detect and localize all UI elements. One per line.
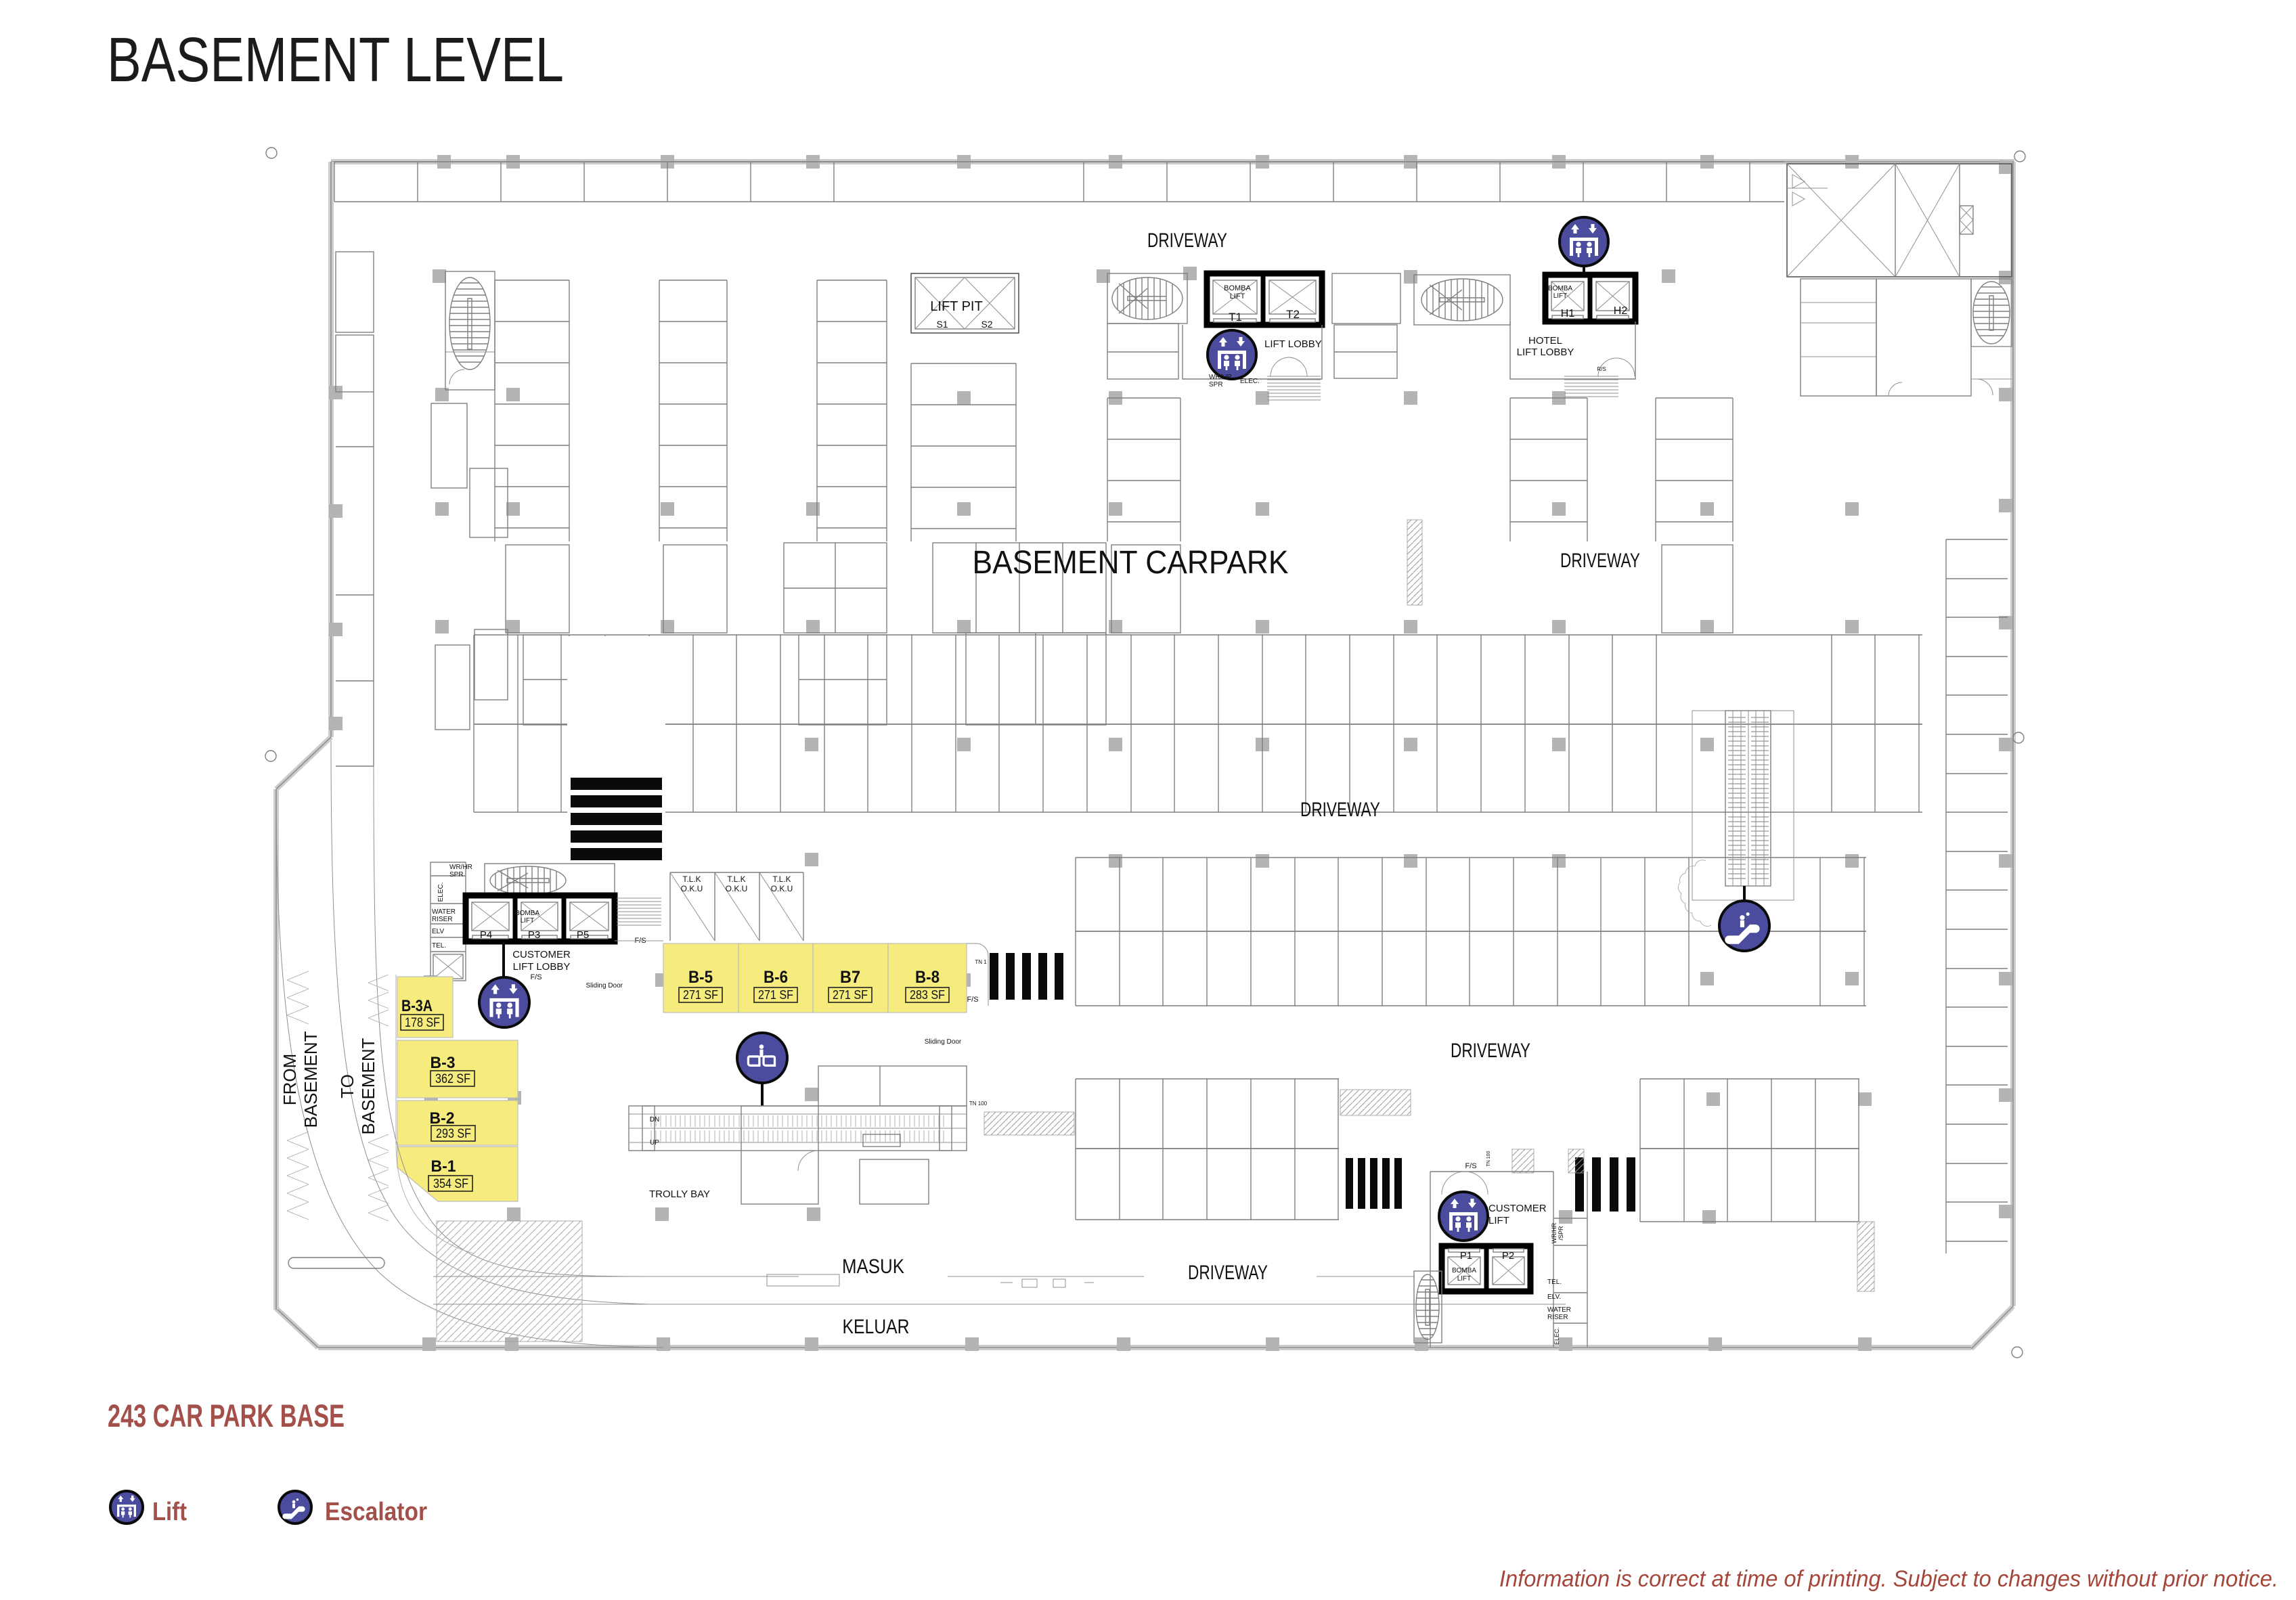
svg-text:F/S: F/S <box>967 996 978 1004</box>
svg-text:Information is correct at time: Information is correct at time of printi… <box>1499 1566 2278 1592</box>
svg-text:CUSTOMER: CUSTOMER <box>1488 1203 1547 1214</box>
svg-text:BOMBA: BOMBA <box>1548 285 1572 292</box>
svg-text:271 SF: 271 SF <box>683 988 718 1002</box>
svg-text:RISER: RISER <box>432 916 453 923</box>
svg-text:Sliding Door: Sliding Door <box>586 982 623 990</box>
svg-text:362 SF: 362 SF <box>435 1072 470 1086</box>
svg-text:354 SF: 354 SF <box>433 1177 468 1191</box>
svg-text:LIFT: LIFT <box>1230 292 1245 301</box>
svg-text:LIFT: LIFT <box>1488 1215 1509 1226</box>
svg-text:BASEMENT LEVEL: BASEMENT LEVEL <box>107 24 564 95</box>
svg-text:LIFT LOBBY: LIFT LOBBY <box>1264 338 1322 350</box>
svg-text:O.K.U: O.K.U <box>681 884 703 893</box>
svg-text:DRIVEWAY: DRIVEWAY <box>1560 550 1640 572</box>
svg-text:P2: P2 <box>1502 1250 1514 1262</box>
svg-text:TO: TO <box>337 1074 357 1098</box>
svg-text:F/S: F/S <box>1465 1162 1476 1170</box>
svg-text:O.K.U: O.K.U <box>726 884 748 893</box>
svg-text:HOTEL: HOTEL <box>1528 335 1562 347</box>
svg-text:KELUAR: KELUAR <box>843 1316 910 1338</box>
svg-text:B-5: B-5 <box>688 968 713 987</box>
svg-text:B-8: B-8 <box>915 968 940 987</box>
svg-text:243 CAR PARK BASE: 243 CAR PARK BASE <box>108 1398 345 1434</box>
svg-text:TN 100: TN 100 <box>969 1101 988 1107</box>
svg-text:B-3A: B-3A <box>401 997 433 1015</box>
svg-text:LIFT LOBBY: LIFT LOBBY <box>1517 347 1574 358</box>
svg-text:178 SF: 178 SF <box>405 1016 440 1030</box>
svg-text:Sliding Door: Sliding Door <box>925 1038 962 1046</box>
svg-text:TROLLY BAY: TROLLY BAY <box>649 1188 710 1200</box>
svg-text:S2: S2 <box>981 319 992 330</box>
svg-text:DRIVEWAY: DRIVEWAY <box>1147 229 1227 252</box>
svg-text:SPR: SPR <box>449 871 464 879</box>
svg-text:P3: P3 <box>528 929 540 941</box>
svg-text:283 SF: 283 SF <box>910 988 945 1002</box>
svg-text:T.L.K: T.L.K <box>772 874 791 884</box>
svg-text:/SPR: /SPR <box>1558 1226 1564 1241</box>
svg-text:UP: UP <box>650 1139 659 1147</box>
svg-text:DRIVEWAY: DRIVEWAY <box>1451 1040 1530 1062</box>
svg-text:TEL.: TEL. <box>432 942 446 950</box>
svg-text:B-6: B-6 <box>764 968 788 987</box>
svg-text:R/S: R/S <box>1597 366 1606 372</box>
svg-text:Escalator: Escalator <box>325 1498 427 1526</box>
svg-text:DRIVEWAY: DRIVEWAY <box>1188 1262 1268 1284</box>
svg-text:ELEC.: ELEC. <box>1553 1327 1560 1345</box>
svg-text:P5: P5 <box>577 929 589 941</box>
svg-text:B-3: B-3 <box>430 1054 456 1072</box>
svg-text:S1: S1 <box>936 319 948 330</box>
svg-text:P4: P4 <box>480 929 492 941</box>
svg-text:H2: H2 <box>1614 305 1628 317</box>
svg-text:271 SF: 271 SF <box>833 988 868 1002</box>
svg-text:ELEC.: ELEC. <box>1240 378 1260 385</box>
svg-text:FROM: FROM <box>280 1054 300 1106</box>
svg-text:TN 1: TN 1 <box>975 959 987 965</box>
svg-text:CUSTOMER: CUSTOMER <box>512 949 571 960</box>
svg-text:DRIVEWAY: DRIVEWAY <box>1300 799 1380 821</box>
svg-text:F/S: F/S <box>530 973 542 981</box>
svg-text:WATER: WATER <box>1547 1306 1571 1314</box>
svg-text:P1: P1 <box>1460 1250 1472 1262</box>
svg-text:TEL.: TEL. <box>1547 1279 1562 1286</box>
svg-text:B-1: B-1 <box>431 1157 456 1176</box>
svg-text:BASEMENT CARPARK: BASEMENT CARPARK <box>973 545 1289 581</box>
svg-text:LIFT LOBBY: LIFT LOBBY <box>513 961 571 973</box>
svg-text:B-2: B-2 <box>430 1109 455 1128</box>
svg-text:ELV.: ELV. <box>1547 1293 1561 1301</box>
svg-text:O.K.U: O.K.U <box>771 884 793 893</box>
svg-text:WR/HR: WR/HR <box>1209 374 1232 381</box>
svg-text:LIFT: LIFT <box>1553 292 1568 300</box>
svg-text:WR/HR: WR/HR <box>449 864 472 871</box>
svg-text:WR/HR: WR/HR <box>1551 1222 1558 1243</box>
svg-text:LIFT: LIFT <box>1457 1275 1472 1283</box>
svg-text:DN: DN <box>650 1116 659 1124</box>
svg-text:H1: H1 <box>1561 308 1575 319</box>
svg-text:293 SF: 293 SF <box>436 1127 471 1141</box>
svg-text:B7: B7 <box>840 968 860 987</box>
svg-text:TN 100: TN 100 <box>1486 1151 1491 1166</box>
svg-text:LIFT PIT: LIFT PIT <box>930 299 982 314</box>
svg-text:MASUK: MASUK <box>842 1255 904 1278</box>
svg-text:BOMBA: BOMBA <box>515 910 539 917</box>
svg-text:BASEMENT: BASEMENT <box>301 1031 321 1128</box>
svg-text:BASEMENT: BASEMENT <box>358 1038 378 1134</box>
svg-text:T1: T1 <box>1229 311 1242 324</box>
svg-text:ELEC.: ELEC. <box>437 883 445 902</box>
svg-text:T.L.K: T.L.K <box>727 874 745 884</box>
svg-text:Lift: Lift <box>152 1498 187 1526</box>
svg-text:T.L.K: T.L.K <box>682 874 701 884</box>
svg-text:WATER: WATER <box>432 908 456 916</box>
svg-text:T2: T2 <box>1286 308 1300 321</box>
svg-text:271 SF: 271 SF <box>758 988 793 1002</box>
svg-text:ELV: ELV <box>432 928 444 935</box>
svg-text:RISER: RISER <box>1547 1314 1568 1321</box>
svg-text:BOMBA: BOMBA <box>1224 284 1251 292</box>
svg-text:SPR: SPR <box>1209 381 1223 388</box>
svg-text:BOMBA: BOMBA <box>1452 1267 1476 1274</box>
svg-text:LIFT: LIFT <box>521 917 535 925</box>
